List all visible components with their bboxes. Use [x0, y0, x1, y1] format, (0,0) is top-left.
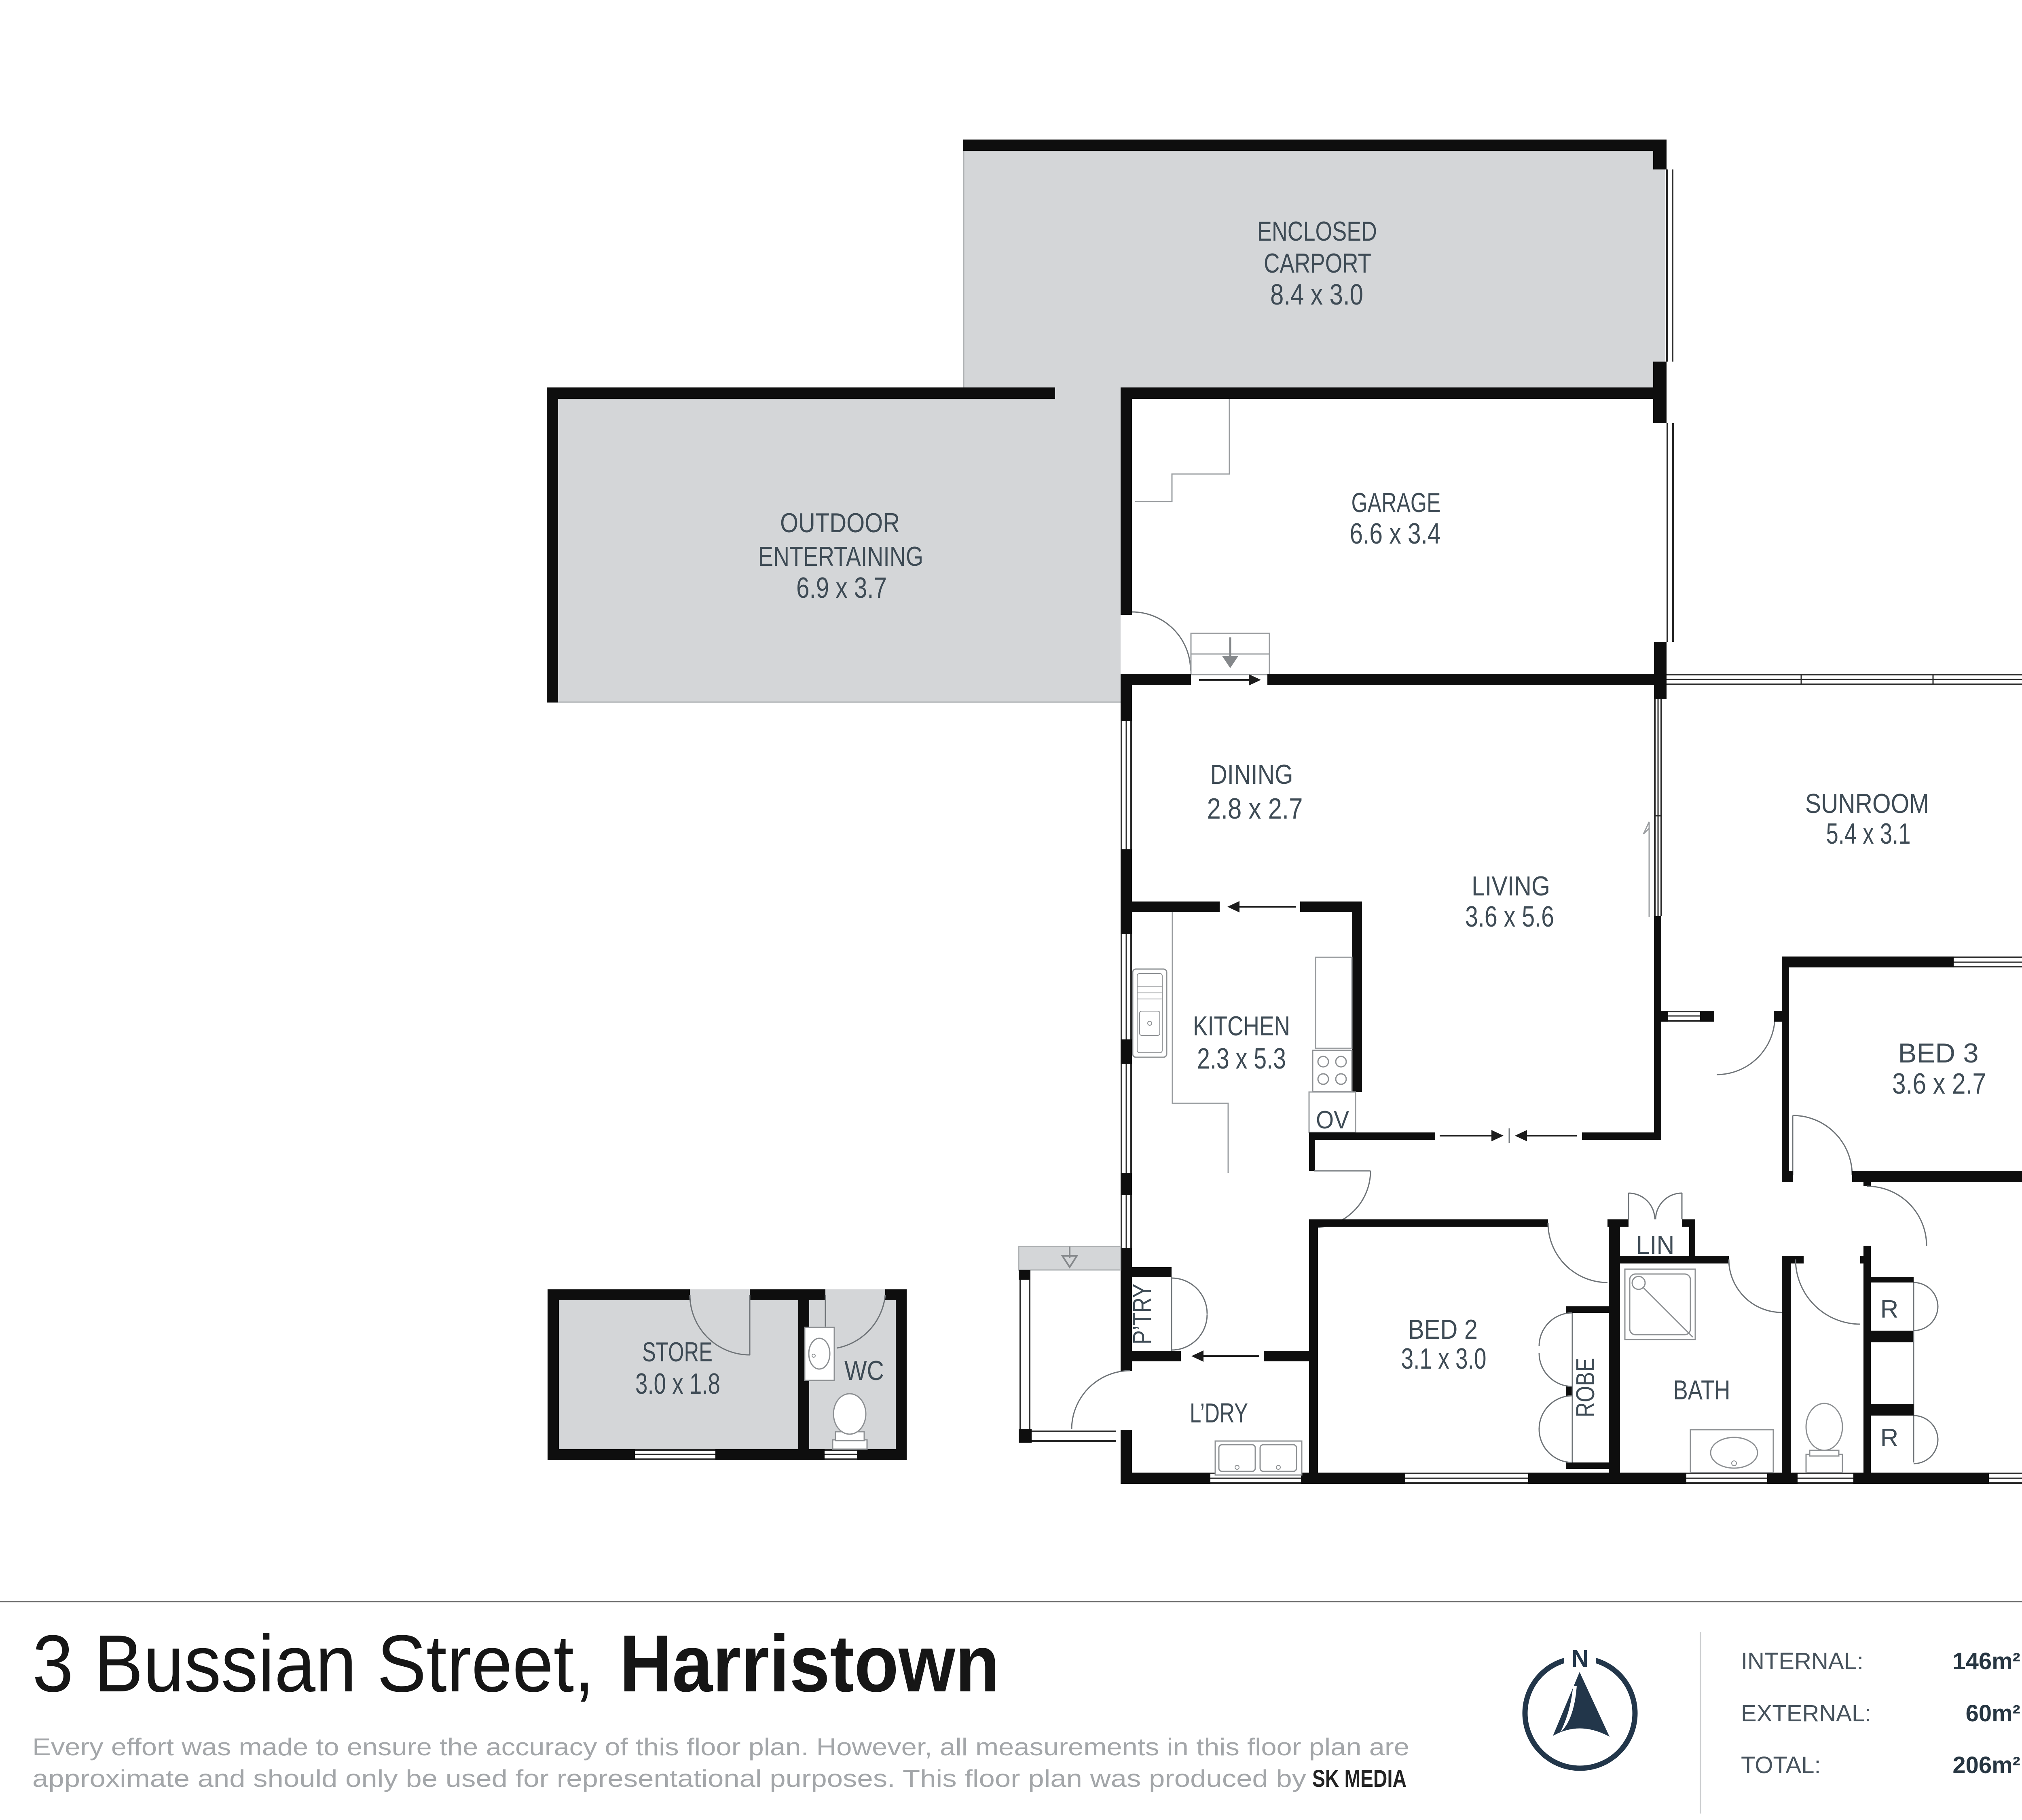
svg-text:2.8 x 2.7: 2.8 x 2.7 [1207, 793, 1303, 825]
svg-text:ROBE: ROBE [1571, 1358, 1600, 1418]
svg-text:EXTERNAL:: EXTERNAL: [1741, 1700, 1871, 1727]
svg-text:KITCHEN: KITCHEN [1193, 1011, 1290, 1041]
svg-text:146m²: 146m² [1952, 1648, 2020, 1674]
svg-text:Every effort was made to ensur: Every effort was made to ensure the accu… [32, 1733, 1409, 1761]
svg-text:TOTAL:: TOTAL: [1741, 1752, 1821, 1778]
svg-text:8.4 x 3.0: 8.4 x 3.0 [1270, 279, 1363, 311]
svg-text:SK MEDIA: SK MEDIA [1312, 1765, 1407, 1792]
svg-text:3.1 x 3.0: 3.1 x 3.0 [1401, 1343, 1487, 1375]
svg-text:6.9 x 3.7: 6.9 x 3.7 [796, 572, 887, 604]
svg-text:GARAGE: GARAGE [1352, 487, 1441, 518]
svg-text:ENTERTAINING: ENTERTAINING [758, 541, 923, 572]
svg-text:OV: OV [1316, 1106, 1349, 1134]
svg-text:N: N [1571, 1645, 1588, 1672]
svg-text:INTERNAL:: INTERNAL: [1741, 1648, 1863, 1674]
svg-text:DINING: DINING [1210, 759, 1293, 790]
svg-text:CARPORT: CARPORT [1264, 248, 1371, 279]
svg-text:206m²: 206m² [1952, 1752, 2020, 1778]
svg-text:LIN: LIN [1636, 1230, 1675, 1259]
svg-text:3.6 x 5.6: 3.6 x 5.6 [1465, 901, 1554, 933]
svg-text:BED 2: BED 2 [1408, 1314, 1478, 1345]
svg-text:3.0 x 1.8: 3.0 x 1.8 [635, 1368, 720, 1400]
svg-text:WC: WC [844, 1355, 884, 1386]
svg-text:P’TRY: P’TRY [1127, 1284, 1157, 1344]
svg-text:3.6 x 2.7: 3.6 x 2.7 [1892, 1068, 1986, 1100]
svg-text:L’DRY: L’DRY [1190, 1398, 1248, 1428]
svg-text:Harristown: Harristown [620, 1619, 1000, 1709]
svg-text:BATH: BATH [1673, 1375, 1730, 1405]
svg-text:R: R [1880, 1295, 1899, 1323]
svg-text:5.4 x 3.1: 5.4 x 3.1 [1826, 818, 1911, 850]
svg-text:R: R [1880, 1424, 1899, 1452]
svg-text:ENCLOSED: ENCLOSED [1257, 216, 1377, 247]
svg-text:BED 3: BED 3 [1898, 1038, 1979, 1069]
svg-text:60m²: 60m² [1966, 1700, 2020, 1727]
svg-text:OUTDOOR: OUTDOOR [780, 508, 900, 538]
svg-text:LIVING: LIVING [1472, 871, 1550, 902]
svg-text:6.6 x 3.4: 6.6 x 3.4 [1350, 518, 1441, 550]
svg-text:STORE: STORE [642, 1337, 713, 1367]
svg-text:approximate and should only be: approximate and should only be used for … [32, 1765, 1306, 1792]
svg-text:2.3 x 5.3: 2.3 x 5.3 [1197, 1043, 1286, 1075]
svg-text:SUNROOM: SUNROOM [1805, 788, 1929, 819]
svg-text:3 Bussian Street,: 3 Bussian Street, [32, 1619, 594, 1709]
